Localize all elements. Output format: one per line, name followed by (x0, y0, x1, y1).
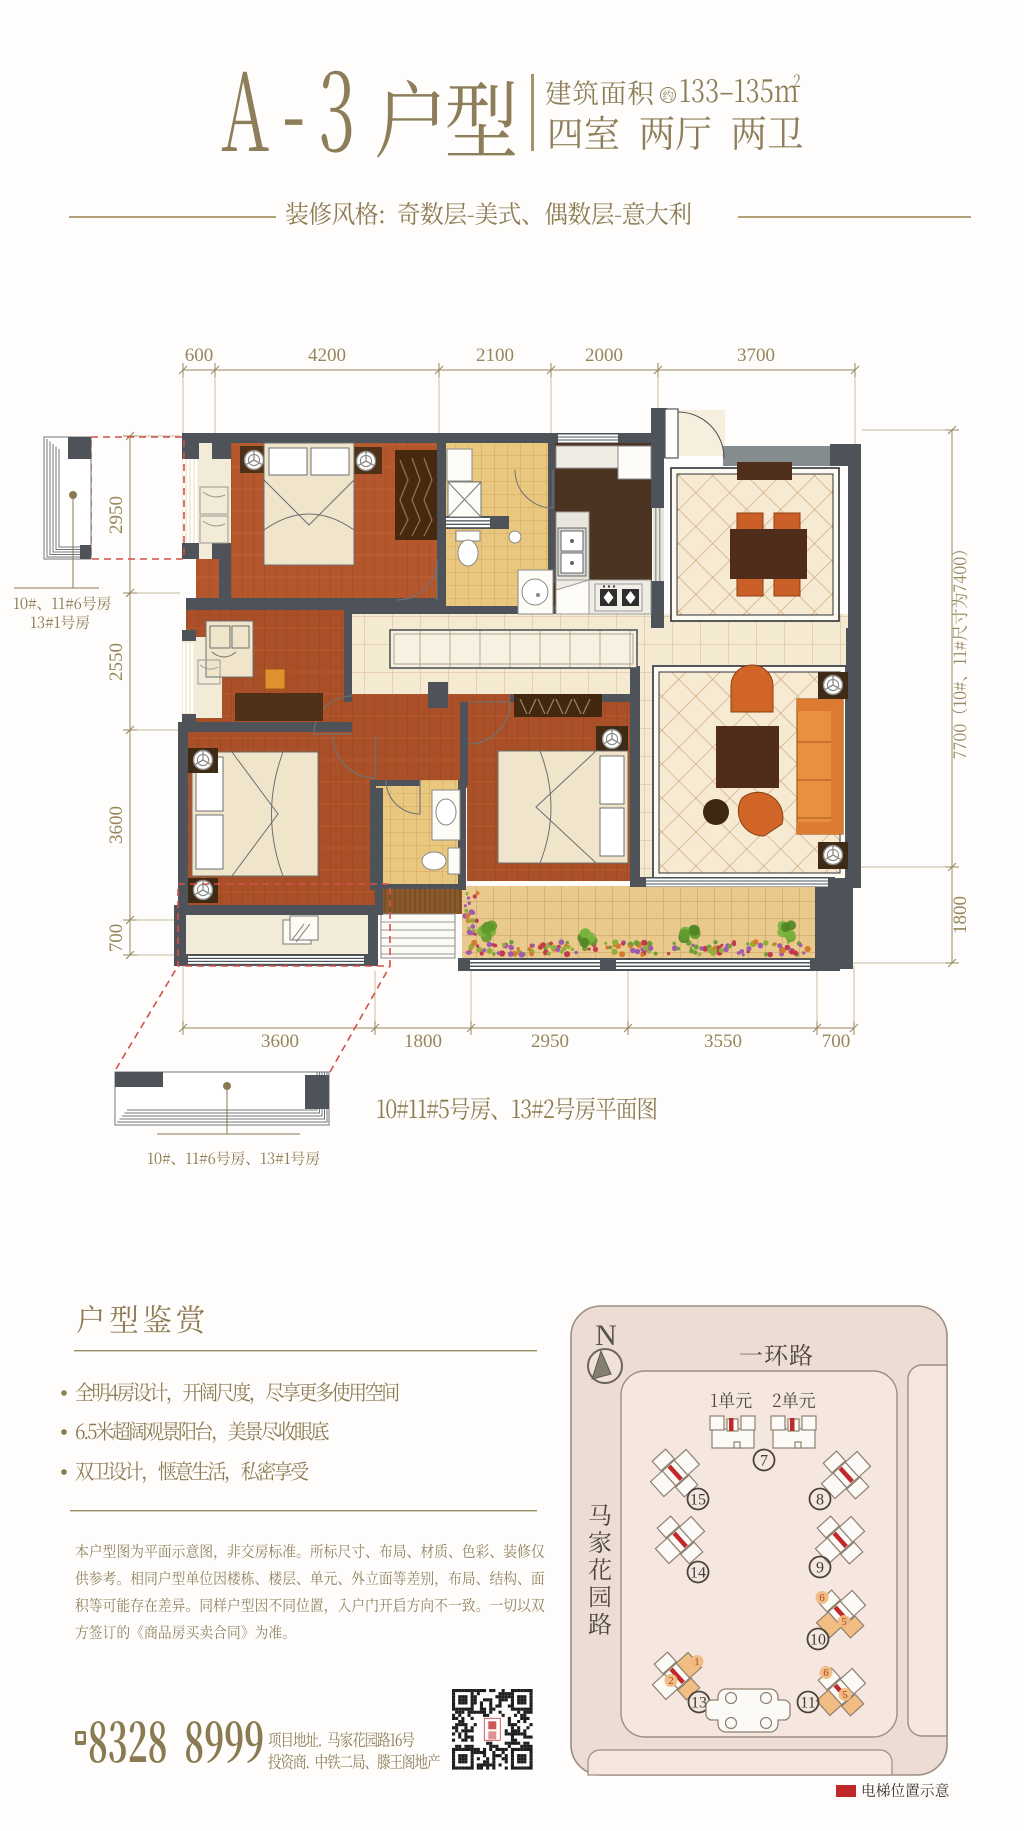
svg-text:10: 10 (810, 1632, 826, 1649)
svg-text:13: 13 (691, 1695, 707, 1712)
svg-text:3550: 3550 (704, 1031, 742, 1052)
svg-text:3600: 3600 (261, 1031, 299, 1052)
svg-text:1: 1 (694, 1656, 700, 1668)
svg-text:3600: 3600 (106, 806, 127, 844)
svg-text:2000: 2000 (585, 345, 623, 366)
svg-text:700: 700 (822, 1031, 851, 1052)
svg-text:2950: 2950 (531, 1031, 569, 1052)
svg-text:2950: 2950 (106, 496, 127, 534)
svg-text:11: 11 (800, 1695, 815, 1712)
svg-text:5: 5 (842, 1689, 848, 1701)
svg-text:15: 15 (690, 1492, 706, 1509)
svg-text:1800: 1800 (404, 1031, 442, 1052)
svg-text:9: 9 (816, 1560, 824, 1577)
svg-text:8: 8 (816, 1492, 824, 1509)
svg-text:700: 700 (106, 924, 127, 953)
svg-text:2550: 2550 (106, 643, 127, 681)
svg-text:4200: 4200 (308, 345, 346, 366)
svg-text:6: 6 (823, 1667, 829, 1679)
svg-text:14: 14 (690, 1565, 706, 1582)
svg-text:2: 2 (668, 1675, 674, 1687)
svg-text:7: 7 (760, 1453, 768, 1470)
svg-text:6: 6 (819, 1592, 825, 1604)
svg-text:5: 5 (841, 1616, 847, 1628)
svg-text:3700: 3700 (737, 345, 775, 366)
svg-text:1800: 1800 (950, 896, 971, 934)
svg-text:N: N (595, 1319, 617, 1352)
svg-text:2100: 2100 (476, 345, 514, 366)
svg-text:600: 600 (185, 345, 214, 366)
